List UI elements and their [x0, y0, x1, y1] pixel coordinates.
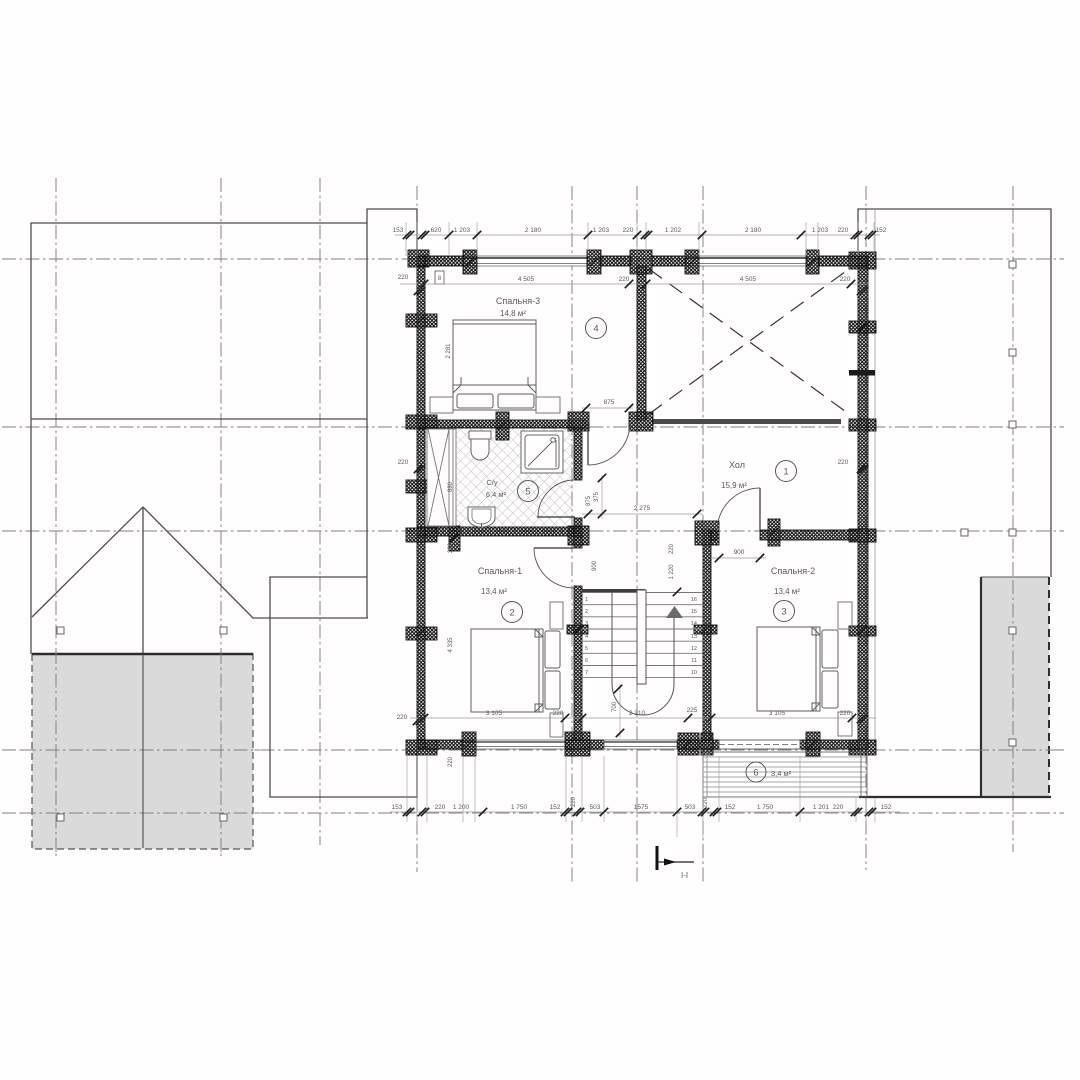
- svg-text:15,9 м²: 15,9 м²: [721, 481, 747, 490]
- svg-text:1 750: 1 750: [511, 804, 528, 811]
- svg-text:3,4 м²: 3,4 м²: [771, 769, 792, 778]
- svg-text:15: 15: [691, 609, 697, 615]
- svg-text:5: 5: [525, 487, 530, 498]
- svg-text:225: 225: [687, 707, 698, 714]
- svg-text:152: 152: [881, 804, 892, 811]
- svg-text:220: 220: [838, 459, 849, 466]
- svg-text:152: 152: [876, 227, 887, 234]
- svg-text:14,8 м²: 14,8 м²: [500, 309, 526, 318]
- svg-text:13,4 м²: 13,4 м²: [774, 587, 800, 596]
- svg-text:220: 220: [669, 543, 675, 554]
- svg-text:10: 10: [691, 670, 697, 676]
- svg-text:3 105: 3 105: [769, 710, 786, 717]
- svg-text:12: 12: [691, 646, 697, 652]
- svg-text:503: 503: [685, 804, 696, 811]
- svg-text:2 275: 2 275: [634, 505, 651, 512]
- svg-text:875: 875: [586, 495, 592, 506]
- svg-text:700: 700: [612, 701, 618, 712]
- svg-text:13: 13: [691, 634, 697, 640]
- svg-text:2 180: 2 180: [525, 227, 542, 234]
- svg-text:1 201: 1 201: [813, 804, 830, 811]
- svg-text:3: 3: [585, 621, 588, 627]
- svg-text:3: 3: [781, 607, 786, 618]
- svg-text:503: 503: [590, 804, 601, 811]
- svg-text:620: 620: [431, 227, 442, 234]
- svg-text:220: 220: [397, 714, 408, 721]
- svg-text:220: 220: [840, 710, 851, 717]
- svg-text:220: 220: [623, 227, 634, 234]
- svg-text:220: 220: [448, 542, 454, 553]
- svg-text:220: 220: [571, 796, 577, 807]
- svg-text:1 203: 1 203: [454, 227, 471, 234]
- svg-text:220: 220: [398, 459, 409, 466]
- svg-text:С/у: С/у: [486, 478, 498, 487]
- svg-text:220: 220: [448, 756, 454, 767]
- svg-text:3 105: 3 105: [486, 710, 503, 717]
- svg-text:152: 152: [550, 804, 561, 811]
- svg-text:1 203: 1 203: [812, 227, 829, 234]
- svg-text:875: 875: [604, 399, 615, 406]
- svg-text:220: 220: [619, 276, 630, 283]
- svg-text:Хол: Хол: [729, 460, 745, 470]
- svg-text:14: 14: [691, 621, 697, 627]
- svg-text:220: 220: [840, 276, 851, 283]
- svg-text:1: 1: [585, 597, 588, 603]
- svg-text:16: 16: [691, 597, 697, 603]
- svg-text:2: 2: [509, 608, 514, 619]
- svg-text:I-I: I-I: [681, 871, 688, 880]
- svg-text:1 203: 1 203: [593, 227, 610, 234]
- svg-text:1 750: 1 750: [757, 804, 774, 811]
- svg-text:2: 2: [585, 609, 588, 615]
- svg-text:152: 152: [725, 804, 736, 811]
- svg-text:6: 6: [753, 768, 758, 779]
- svg-text:4 335: 4 335: [448, 637, 454, 653]
- svg-text:7: 7: [585, 670, 588, 676]
- svg-text:5: 5: [585, 646, 588, 652]
- svg-text:2 180: 2 180: [745, 227, 762, 234]
- svg-text:6,4 м²: 6,4 м²: [486, 490, 507, 499]
- svg-text:1575: 1575: [634, 804, 649, 811]
- svg-text:4 505: 4 505: [740, 276, 757, 283]
- svg-text:900: 900: [592, 560, 598, 571]
- svg-text:153: 153: [392, 804, 403, 811]
- svg-text:6: 6: [585, 658, 588, 664]
- svg-text:375: 375: [594, 491, 600, 502]
- svg-text:1 200: 1 200: [453, 804, 470, 811]
- svg-text:Спальня-1: Спальня-1: [478, 566, 522, 576]
- svg-text:13,4 м²: 13,4 м²: [481, 587, 507, 596]
- svg-text:900: 900: [734, 549, 745, 556]
- svg-text:1: 1: [783, 467, 788, 478]
- svg-text:1 220: 1 220: [669, 564, 675, 580]
- svg-text:220: 220: [398, 274, 409, 281]
- svg-text:4 505: 4 505: [518, 276, 535, 283]
- svg-text:153: 153: [393, 227, 404, 234]
- svg-text:220: 220: [833, 804, 844, 811]
- svg-text:Спальня-2: Спальня-2: [771, 566, 815, 576]
- svg-text:220: 220: [553, 710, 564, 717]
- svg-text:220: 220: [435, 804, 446, 811]
- svg-text:220: 220: [703, 797, 709, 808]
- svg-text:4: 4: [593, 324, 598, 335]
- svg-text:1 202: 1 202: [665, 227, 682, 234]
- svg-text:Спальня-3: Спальня-3: [496, 296, 540, 306]
- svg-text:2 281: 2 281: [446, 343, 452, 359]
- svg-text:4: 4: [585, 634, 588, 640]
- svg-text:2 310: 2 310: [629, 710, 646, 717]
- svg-text:220: 220: [838, 227, 849, 234]
- svg-text:880: 880: [448, 481, 454, 492]
- svg-text:11: 11: [691, 658, 697, 664]
